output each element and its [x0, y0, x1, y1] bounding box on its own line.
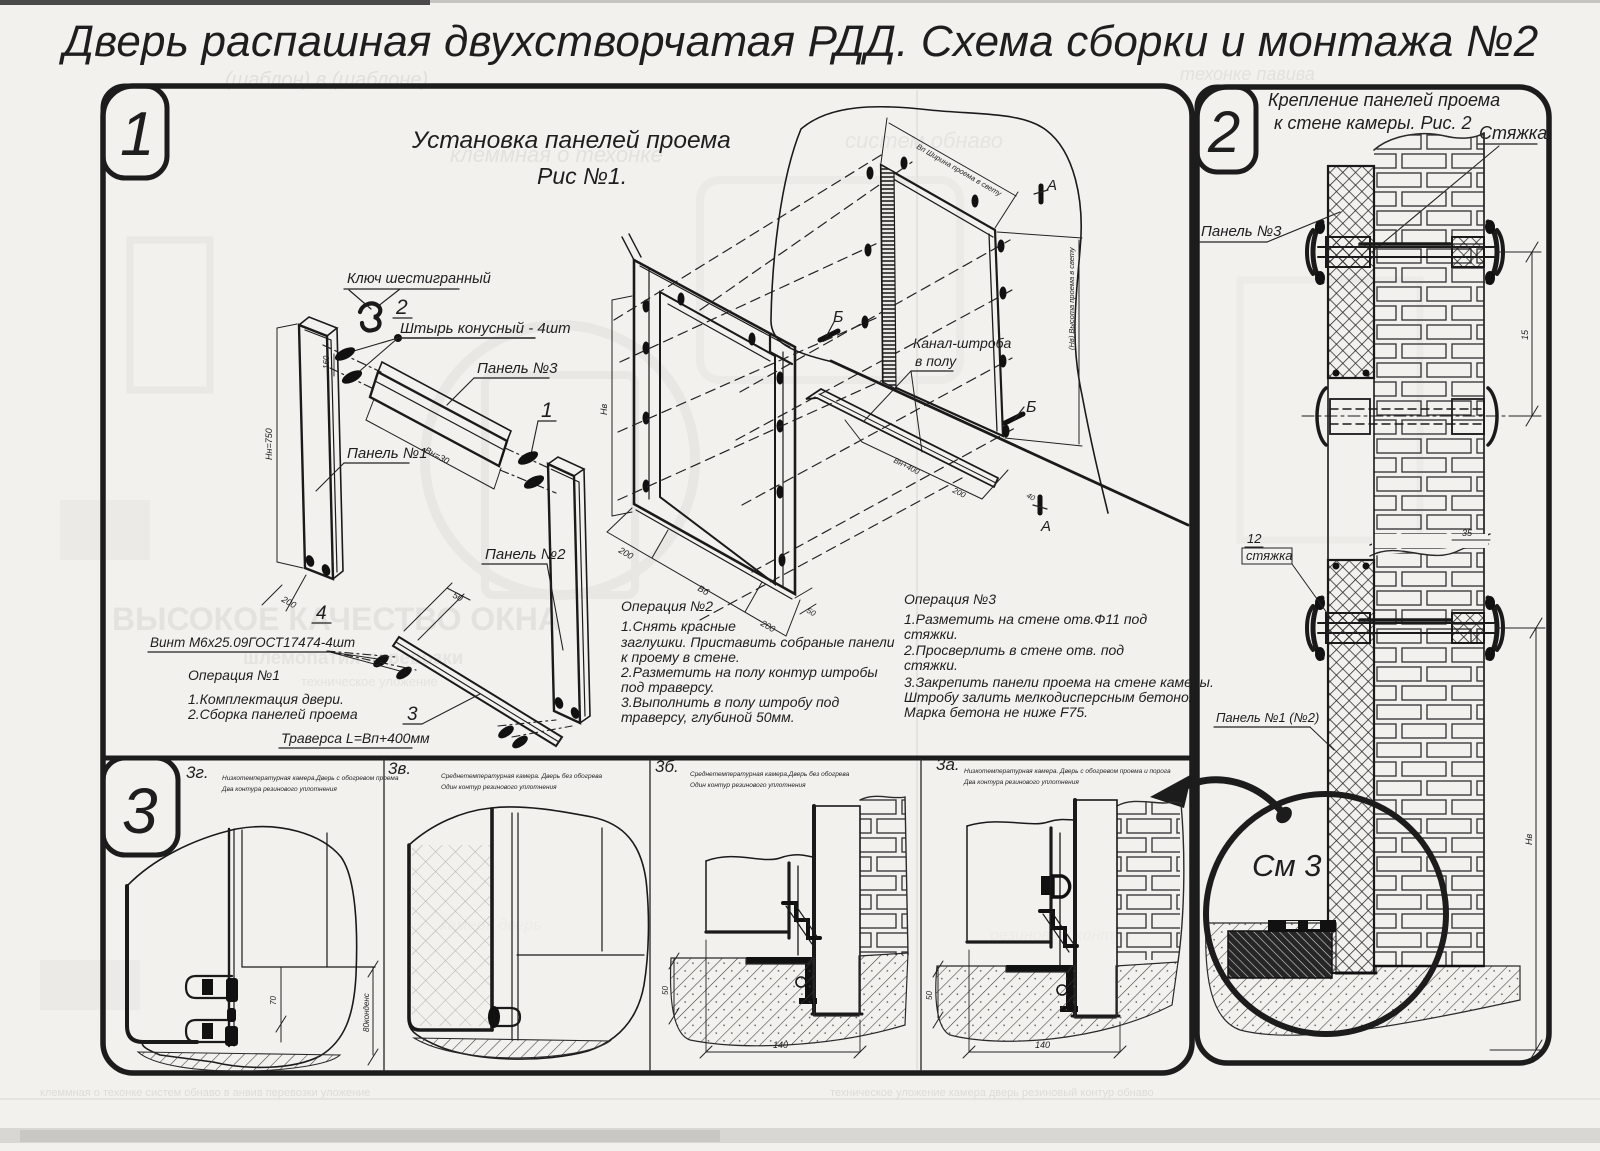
svg-text:3в.: 3в.: [388, 759, 411, 778]
svg-text:3: 3: [122, 775, 158, 847]
svg-text:Панель №3: Панель №3: [477, 360, 558, 377]
svg-text:под траверсу.: под траверсу.: [621, 679, 715, 695]
svg-text:ВЫСОКОЕ КАЧЕСТВО ОКНА: ВЫСОКОЕ КАЧЕСТВО ОКНА: [112, 601, 561, 637]
svg-text:3б.: 3б.: [655, 757, 679, 776]
svg-text:Рис №1.: Рис №1.: [537, 163, 627, 189]
svg-text:траверсу, глубиной 50мм.: траверсу, глубиной 50мм.: [621, 709, 795, 725]
svg-text:2: 2: [395, 296, 408, 319]
svg-text:2.Сборка панелей проема: 2.Сборка панелей проема: [187, 706, 358, 722]
svg-text:Панель №2: Панель №2: [485, 546, 566, 563]
svg-text:2.Разметить на полу контур штр: 2.Разметить на полу контур штробы: [620, 664, 878, 680]
svg-text:3.Закрепить панели проема на с: 3.Закрепить панели проема на стене камер…: [904, 674, 1214, 690]
svg-text:3г.: 3г.: [186, 763, 209, 782]
svg-text:А: А: [1040, 518, 1051, 535]
svg-text:140: 140: [1035, 1040, 1050, 1050]
svg-text:2.Просверлить в стене отв. п: 2.Просверлить в стене отв. под: [903, 642, 1124, 658]
svg-text:Нв: Нв: [599, 404, 609, 415]
svg-text:Операция №2: Операция №2: [621, 598, 713, 614]
svg-text:Марка бетона не ниже F75.: Марка бетона не ниже F75.: [904, 704, 1088, 720]
svg-text:Панель №3: Панель №3: [1201, 223, 1282, 240]
svg-text:1.Снять красные: 1.Снять красные: [621, 618, 736, 634]
svg-text:Стяжка: Стяжка: [1479, 123, 1547, 143]
svg-text:3: 3: [407, 704, 418, 725]
svg-text:Б: Б: [1026, 399, 1036, 416]
svg-text:35: 35: [1462, 528, 1473, 538]
svg-text:160: 160: [322, 355, 331, 369]
svg-text:Операция №1: Операция №1: [188, 667, 280, 683]
svg-text:стяжки.: стяжки.: [904, 657, 958, 673]
svg-text:Штробу залить мелкодисперсным: Штробу залить мелкодисперсным бетоном: [904, 689, 1199, 705]
svg-text:Один контур резинового уплотне: Один контур резинового уплотнения: [441, 783, 557, 791]
svg-text:А: А: [1046, 177, 1057, 194]
svg-text:Нн=750: Нн=750: [264, 428, 274, 460]
svg-text:Панель №1: Панель №1: [347, 445, 427, 462]
svg-text:Низкотемпературная камера.Двер: Низкотемпературная камера.Дверь с обогре…: [222, 774, 399, 782]
svg-text:техническое уложение: техническое уложение: [301, 674, 438, 689]
svg-text:Низкотемпературная камера. Две: Низкотемпературная камера. Дверь с обогр…: [964, 767, 1171, 775]
svg-text:Операция №3: Операция №3: [904, 591, 996, 607]
svg-text:к стене камеры. Рис. 2: к стене камеры. Рис. 2: [1274, 113, 1472, 133]
svg-text:1: 1: [541, 399, 553, 422]
svg-text:Установка панелей проема: Установка панелей проема: [411, 127, 731, 154]
svg-text:Штырь конусный - 4шт: Штырь конусный - 4шт: [400, 320, 571, 337]
svg-text:3а.: 3а.: [936, 755, 960, 774]
svg-text:1: 1: [120, 100, 154, 169]
svg-text:(Нв) Высота проема в свету: (Нв) Высота проема в свету: [1067, 246, 1076, 350]
svg-text:заглушки. Приставить собраные: заглушки. Приставить собраные панели: [620, 634, 895, 650]
svg-text:к проему в стене.: к проему в стене.: [621, 649, 740, 665]
svg-text:12: 12: [1247, 531, 1262, 546]
svg-text:Нв: Нв: [1524, 834, 1534, 845]
svg-text:Траверса L=Вп+400мм: Траверса L=Вп+400мм: [281, 730, 430, 746]
svg-text:80конденс: 80конденс: [362, 993, 371, 1032]
svg-text:техническое уложение камера дв: техническое уложение камера дверь резино…: [830, 1087, 1154, 1099]
svg-text:1.Комплектация двери.: 1.Комплектация двери.: [188, 691, 344, 707]
svg-text:стяжки.: стяжки.: [904, 626, 958, 642]
svg-text:Среднетемпературная камера.Две: Среднетемпературная камера.Дверь без обо…: [690, 770, 850, 778]
svg-text:2: 2: [1207, 100, 1240, 165]
svg-text:50: 50: [925, 991, 934, 1000]
svg-text:Крепление панелей проема: Крепление панелей проема: [1268, 90, 1500, 110]
svg-text:Два контура резинового уплотне: Два контура резинового уплотнения: [221, 786, 337, 793]
svg-text:4: 4: [316, 603, 327, 624]
svg-text:15: 15: [1520, 329, 1530, 340]
svg-text:См 3: См 3: [1252, 848, 1322, 883]
svg-text:техонке павива: техонке павива: [1180, 64, 1315, 84]
svg-text:Панель №1 (№2): Панель №1 (№2): [1216, 710, 1319, 725]
svg-text:70: 70: [269, 996, 278, 1005]
svg-text:1.Разметить на стене отв.Ф11 п: 1.Разметить на стене отв.Ф11 под: [904, 611, 1147, 627]
svg-text:Ключ шестигранный: Ключ шестигранный: [347, 271, 491, 287]
svg-text:Два контура резинового уплотне: Два контура резинового уплотнения: [963, 779, 1079, 786]
svg-text:Винт М6х25.09ГОСТ17474-4шт: Винт М6х25.09ГОСТ17474-4шт: [150, 635, 355, 650]
svg-text:Канал-штроба: Канал-штроба: [913, 335, 1012, 351]
svg-text:Дверь распашная двухстворчатая: Дверь распашная двухстворчатая РДД. Схем…: [58, 17, 1538, 66]
svg-text:Один контур резинового уплотне: Один контур резинового уплотнения: [690, 781, 806, 789]
svg-text:50: 50: [661, 986, 670, 995]
svg-text:Среднетемпературная камера. Дв: Среднетемпературная камера. Дверь без об…: [441, 772, 602, 780]
svg-text:стяжка: стяжка: [1246, 548, 1292, 563]
svg-text:140: 140: [773, 1040, 788, 1050]
svg-text:3.Выполнить в полу штробу под: 3.Выполнить в полу штробу под: [621, 694, 839, 710]
svg-text:в полу: в полу: [915, 353, 957, 369]
svg-text:клеммная о техонке систем обна: клеммная о техонке систем обнаво в анвив…: [40, 1087, 370, 1099]
svg-text:Б: Б: [833, 309, 843, 326]
